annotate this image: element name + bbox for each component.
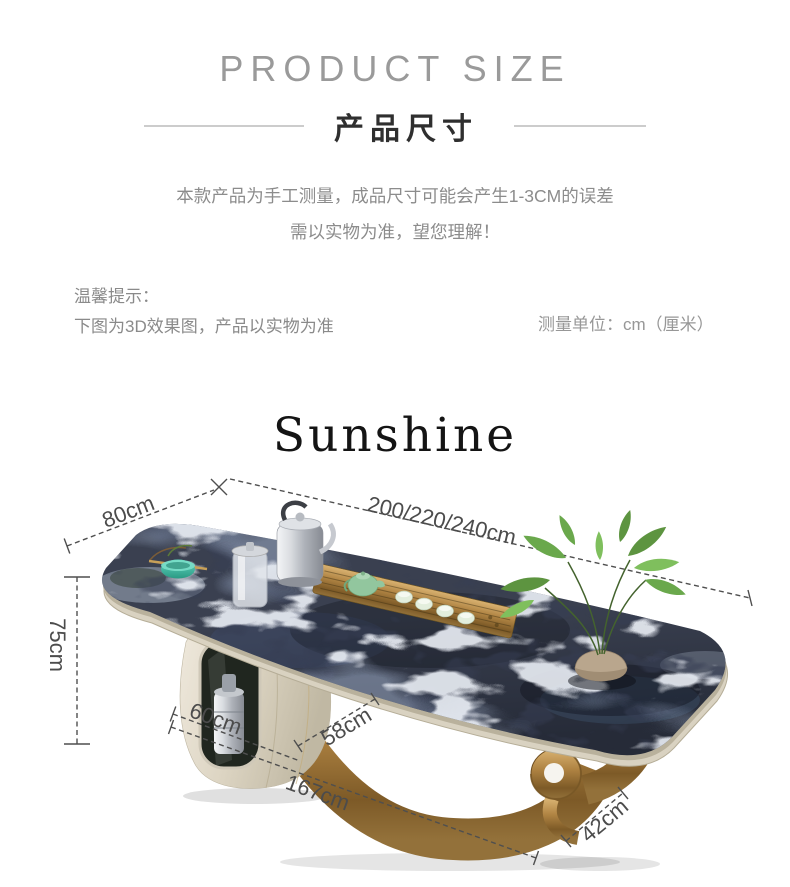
plant-fronds	[497, 509, 687, 622]
product-size-page: PRODUCT SIZE 产品尺寸 本款产品为手工测量，成品尺寸可能会产生1-3…	[0, 0, 790, 887]
gold-base-scroll-hole	[544, 763, 564, 783]
tea-table-illustration: 80cm 200/220/240cm 75cm 60cm 58cm 167cm …	[0, 0, 790, 887]
dimension-label-top-depth: 80cm	[99, 490, 158, 533]
dimension-label-top-length: 200/220/240cm	[365, 491, 518, 549]
dimension-label-height: 75cm	[45, 618, 70, 672]
marble-texture	[60, 500, 760, 820]
glass-jar	[232, 542, 268, 607]
marble-tabletop	[60, 500, 760, 820]
